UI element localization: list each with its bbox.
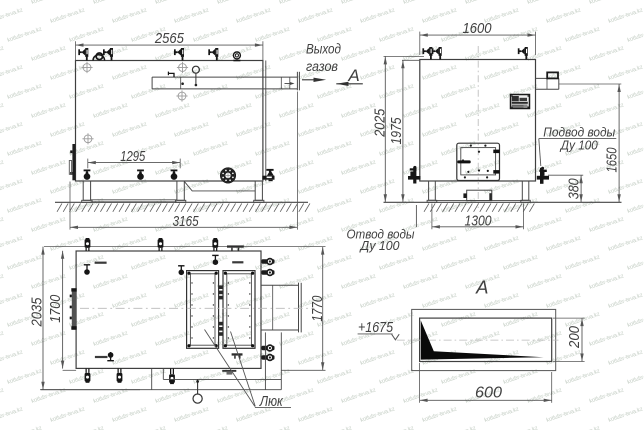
svg-text:200: 200 <box>567 326 583 349</box>
svg-text:600: 600 <box>475 385 502 402</box>
svg-text:2035: 2035 <box>30 297 46 328</box>
svg-text:Ду 100: Ду 100 <box>359 238 401 253</box>
svg-text:газов: газов <box>306 59 338 74</box>
svg-text:1300: 1300 <box>465 212 493 229</box>
svg-text:2025: 2025 <box>373 108 389 138</box>
svg-text:1650: 1650 <box>605 148 621 173</box>
svg-text:Выход: Выход <box>306 42 341 57</box>
svg-text:1295: 1295 <box>120 149 146 165</box>
svg-text:1600: 1600 <box>463 20 493 37</box>
svg-text:А: А <box>475 277 488 298</box>
svg-text:380: 380 <box>566 178 582 199</box>
svg-text:2565: 2565 <box>154 30 184 47</box>
svg-text:3165: 3165 <box>173 213 200 230</box>
svg-text:1975: 1975 <box>389 117 405 145</box>
svg-text:1700: 1700 <box>48 295 64 323</box>
svg-text:Ду 100: Ду 100 <box>559 137 598 152</box>
svg-text:А: А <box>347 66 359 85</box>
